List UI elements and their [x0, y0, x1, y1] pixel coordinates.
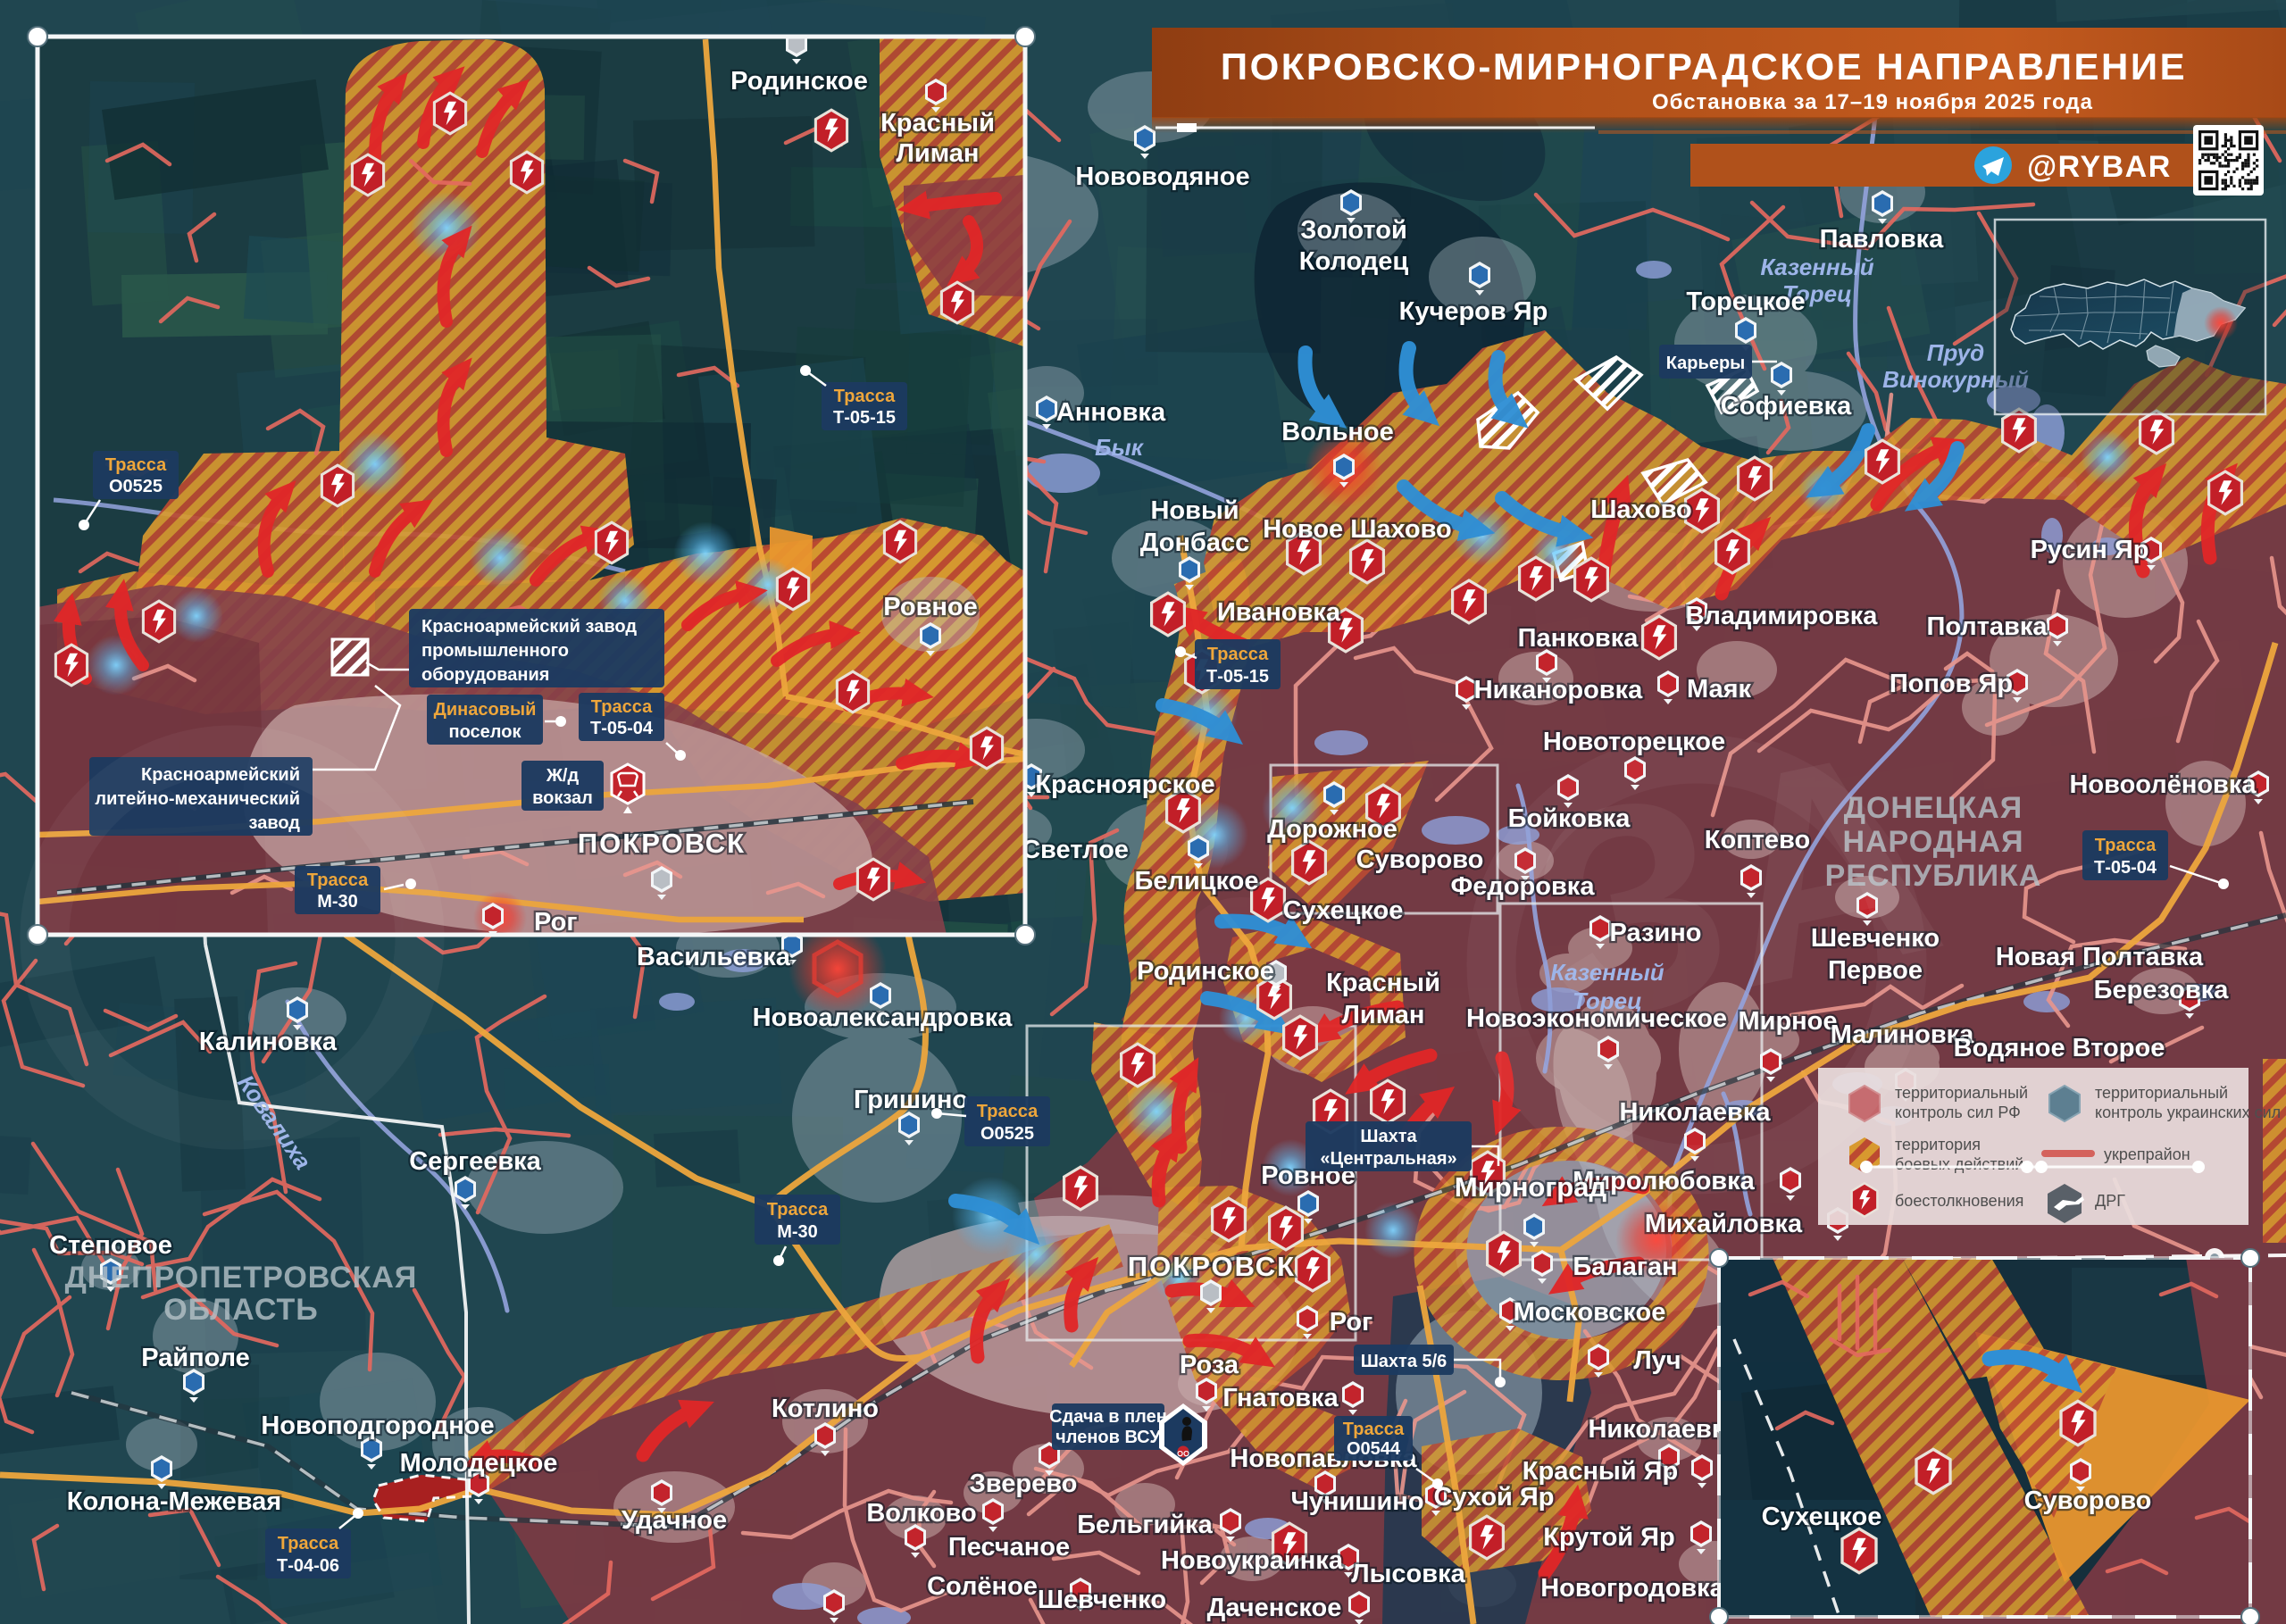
svg-text:М-30: М-30	[777, 1222, 818, 1242]
svg-text:Колодец: Колодец	[1299, 247, 1409, 276]
svg-text:ДРГ: ДРГ	[2095, 1192, 2125, 1210]
svg-text:Казенный: Казенный	[1760, 254, 1873, 280]
svg-text:Красный: Красный	[880, 109, 995, 137]
svg-text:Луч: Луч	[1633, 1346, 1681, 1375]
svg-text:Водяное Второе: Водяное Второе	[1954, 1034, 2165, 1062]
svg-text:Сухецкое: Сухецкое	[1762, 1503, 1882, 1531]
svg-text:Сдача в плен: Сдача в плен	[1049, 1407, 1167, 1427]
svg-text:Т-05-04: Т-05-04	[590, 719, 654, 738]
svg-text:«Центральная»: «Центральная»	[1320, 1149, 1456, 1169]
svg-text:Роза: Роза	[1180, 1351, 1239, 1379]
svg-text:Березовка: Березовка	[2094, 976, 2230, 1004]
svg-text:вокзал: вокзал	[532, 788, 593, 808]
svg-text:Даченское: Даченское	[1207, 1594, 1342, 1622]
svg-text:Трасса: Трасса	[1207, 645, 1269, 664]
svg-text:Лысовка: Лысовка	[1351, 1560, 1465, 1588]
svg-text:Донбасс: Донбасс	[1140, 529, 1250, 557]
svg-text:Т-04-06: Т-04-06	[277, 1556, 339, 1576]
svg-text:Новое Шахово: Новое Шахово	[1263, 515, 1452, 544]
svg-text:Торецкое: Торецкое	[1686, 287, 1805, 316]
svg-text:Т-05-15: Т-05-15	[833, 408, 896, 428]
svg-text:Ровное: Ровное	[883, 593, 978, 621]
svg-text:Трасса: Трасса	[767, 1200, 829, 1220]
svg-text:Трасса: Трасса	[278, 1534, 339, 1553]
svg-text:Полтавка: Полтавка	[1926, 612, 2048, 641]
svg-text:Солёное: Солёное	[927, 1572, 1038, 1601]
svg-text:Трасса: Трасса	[591, 697, 653, 717]
svg-text:Крутой Яр: Крутой Яр	[1543, 1523, 1675, 1552]
svg-text:Трасса: Трасса	[1343, 1420, 1405, 1439]
svg-text:Удачное: Удачное	[622, 1506, 727, 1535]
svg-text:Сухецкое: Сухецкое	[1283, 896, 1404, 925]
svg-text:Балаган: Балаган	[1573, 1253, 1677, 1281]
svg-text:Т-05-04: Т-05-04	[2094, 858, 2157, 878]
svg-text:Новоукраинка: Новоукраинка	[1161, 1546, 1344, 1575]
svg-text:Гришино: Гришино	[854, 1086, 968, 1114]
svg-text:завод: завод	[249, 813, 301, 833]
svg-text:Динасовый: Динасовый	[434, 700, 537, 720]
svg-text:Маяк: Маяк	[1687, 675, 1752, 704]
svg-text:ПОКРОВСК: ПОКРОВСК	[578, 828, 746, 859]
svg-text:М-30: М-30	[317, 892, 358, 912]
svg-text:Лиман: Лиман	[1342, 1001, 1425, 1029]
svg-text:Вольное: Вольное	[1281, 418, 1394, 446]
svg-text:Чунишино: Чунишино	[1290, 1487, 1423, 1516]
svg-text:поселок: поселок	[449, 722, 522, 742]
svg-text:Гнатовка: Гнатовка	[1222, 1384, 1339, 1412]
svg-text:Шахта 5/6: Шахта 5/6	[1361, 1352, 1448, 1371]
svg-text:Попов Яр: Попов Яр	[1890, 670, 2013, 698]
svg-text:Т-05-15: Т-05-15	[1206, 667, 1269, 687]
svg-text:Степовое: Степовое	[49, 1231, 172, 1260]
svg-text:Нововодяное: Нововодяное	[1075, 162, 1249, 191]
svg-text:боестолкновения: боестолкновения	[1895, 1192, 2023, 1210]
svg-text:Сергеевка: Сергеевка	[409, 1147, 541, 1176]
svg-text:промышленного: промышленного	[421, 641, 569, 661]
svg-text:Золотой: Золотой	[1300, 216, 1407, 245]
svg-text:Сухой Яр: Сухой Яр	[1434, 1483, 1555, 1512]
svg-text:Суворово: Суворово	[2024, 1487, 2152, 1515]
svg-text:Трасса: Трасса	[105, 455, 167, 475]
svg-text:Новая Полтавка: Новая Полтавка	[1996, 943, 2204, 971]
svg-text:Рог: Рог	[534, 908, 577, 937]
svg-text:Мирноград: Мирноград	[1455, 1171, 1607, 1203]
svg-text:Новоалександровка: Новоалександровка	[753, 1004, 1014, 1032]
svg-text:Волково: Волково	[866, 1499, 976, 1528]
svg-text:территория: территория	[1895, 1136, 1981, 1153]
svg-text:Калиновка: Калиновка	[199, 1028, 338, 1056]
svg-text:Панковка: Панковка	[1518, 624, 1639, 653]
svg-text:оборудования: оборудования	[421, 665, 549, 685]
svg-text:Шахта: Шахта	[1360, 1127, 1417, 1146]
svg-text:контроль украинских сил: контроль украинских сил	[2095, 1103, 2281, 1121]
svg-text:Шахово: Шахово	[1590, 496, 1692, 524]
svg-text:Васильевка: Васильевка	[637, 943, 791, 971]
svg-text:Песчаное: Песчаное	[948, 1533, 1070, 1562]
svg-text:Зверево: Зверево	[970, 1470, 1078, 1498]
svg-text:@RYBAR: @RYBAR	[2027, 150, 2172, 184]
svg-text:Родинское: Родинское	[730, 67, 868, 96]
svg-text:Родинское: Родинское	[1137, 957, 1274, 986]
svg-text:Новоподгородное: Новоподгородное	[261, 1412, 494, 1440]
svg-text:Трасса: Трасса	[307, 870, 369, 890]
svg-text:Светлое: Светлое	[1022, 836, 1129, 864]
svg-text:Бельгийка: Бельгийка	[1077, 1511, 1213, 1539]
svg-text:укрепрайон: укрепрайон	[2104, 1145, 2190, 1163]
svg-text:О0525: О0525	[109, 477, 163, 496]
svg-text:Молодецкое: Молодецкое	[400, 1449, 558, 1478]
svg-text:Владимировка: Владимировка	[1686, 602, 1879, 630]
svg-text:территориальный: территориальный	[2095, 1084, 2228, 1102]
svg-text:Рог: Рог	[1330, 1308, 1372, 1337]
svg-text:Белицкое: Белицкое	[1134, 867, 1258, 895]
svg-text:Русин Яр: Русин Яр	[2031, 536, 2149, 564]
svg-text:Софиевка: Софиевка	[1721, 392, 1852, 421]
svg-text:членов ВСУ: членов ВСУ	[1055, 1428, 1161, 1447]
svg-text:Обстановка за 17–19 ноября 202: Обстановка за 17–19 ноября 2025 года	[1652, 90, 2093, 114]
svg-text:Карьеры: Карьеры	[1666, 354, 1746, 373]
svg-text:территориальный: территориальный	[1895, 1084, 2028, 1102]
svg-text:Трасса: Трасса	[834, 387, 896, 406]
svg-text:Райполе: Райполе	[141, 1344, 250, 1372]
svg-text:Николаевка: Николаевка	[1619, 1098, 1771, 1127]
svg-text:Ивановка: Ивановка	[1217, 598, 1341, 627]
svg-text:Анновка: Анновка	[1056, 398, 1166, 427]
svg-text:Трасса: Трасса	[977, 1102, 1039, 1121]
svg-text:Новоолёновка: Новоолёновка	[2069, 770, 2257, 799]
svg-text:Суворово: Суворово	[1356, 845, 1484, 874]
svg-text:ОБЛАСТЬ: ОБЛАСТЬ	[163, 1293, 319, 1327]
svg-text:боевых действий: боевых действий	[1895, 1155, 2023, 1173]
svg-text:Кучеров Яр: Кучеров Яр	[1399, 297, 1548, 326]
svg-text:Ж/д: Ж/д	[546, 766, 580, 786]
svg-text:Колона-Межевая: Колона-Межевая	[67, 1487, 281, 1516]
svg-text:Николаевка: Николаевка	[1588, 1415, 1740, 1444]
svg-text:Бык: Бык	[1095, 434, 1145, 461]
svg-text:Лиман: Лиман	[897, 139, 980, 168]
svg-text:Дорожное: Дорожное	[1267, 815, 1397, 844]
svg-text:Красный Яр: Красный Яр	[1523, 1457, 1678, 1486]
svg-text:Михайловка: Михайловка	[1645, 1210, 1803, 1238]
svg-text:Красный: Красный	[1326, 969, 1440, 997]
svg-text:Трасса: Трасса	[2095, 836, 2157, 855]
svg-text:Котлино: Котлино	[772, 1395, 879, 1423]
svg-text:Павловка: Павловка	[1820, 225, 1945, 254]
svg-text:Новогродовка: Новогродовка	[1540, 1574, 1724, 1603]
svg-text:О0544: О0544	[1347, 1439, 1401, 1459]
svg-text:ДНЕПРОПЕТРОВСКАЯ: ДНЕПРОПЕТРОВСКАЯ	[65, 1261, 418, 1295]
svg-text:ПОКРОВСКО-МИРНОГРАДСКОЕ НАПРАВ: ПОКРОВСКО-МИРНОГРАДСКОЕ НАПРАВЛЕНИЕ	[1221, 46, 2187, 87]
svg-text:Шевченко: Шевченко	[1038, 1586, 1166, 1614]
svg-text:Новый: Новый	[1150, 496, 1239, 525]
svg-text:контроль сил РФ: контроль сил РФ	[1895, 1103, 2021, 1121]
svg-text:Пруд: Пруд	[1927, 339, 1984, 366]
svg-text:О0525: О0525	[980, 1124, 1034, 1144]
svg-text:Московское: Московское	[1514, 1298, 1666, 1327]
svg-text:Красноармейский завод: Красноармейский завод	[421, 617, 637, 637]
svg-text:Красноярское: Красноярское	[1035, 770, 1214, 799]
svg-text:Никаноровка: Никаноровка	[1474, 676, 1643, 704]
svg-text:ПОКРОВСК: ПОКРОВСК	[1128, 1251, 1296, 1282]
